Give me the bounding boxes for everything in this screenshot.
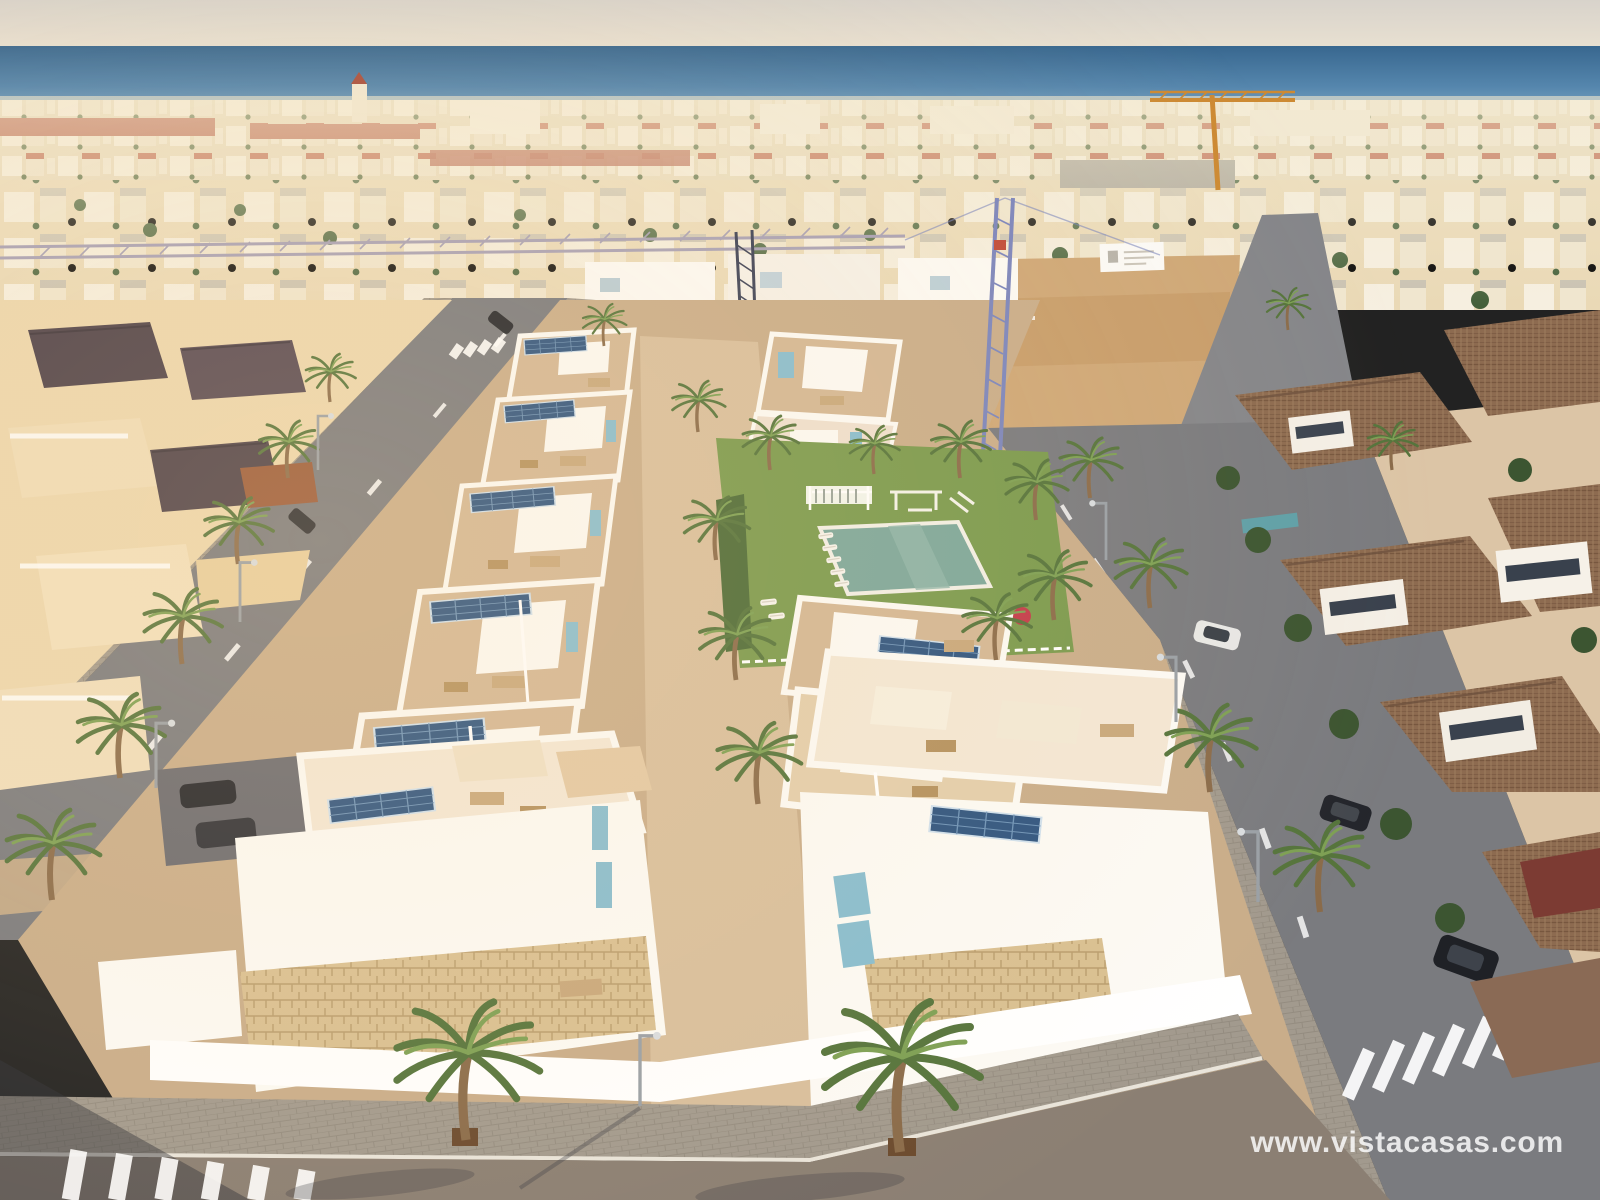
watermark-text: www.vistacasas.com xyxy=(1251,1126,1564,1160)
scene-canvas xyxy=(0,0,1600,1200)
sunlight-wash xyxy=(0,0,1600,1200)
aerial-render: www.vistacasas.com xyxy=(0,0,1600,1200)
